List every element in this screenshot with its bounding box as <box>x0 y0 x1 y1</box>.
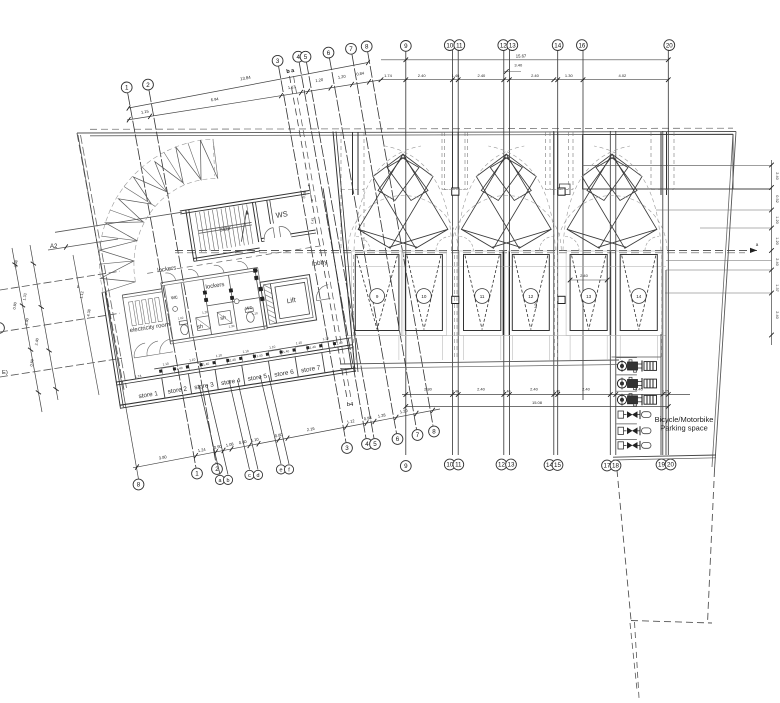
svg-text:10: 10 <box>421 294 427 299</box>
svg-text:2: 2 <box>146 82 150 89</box>
svg-text:12: 12 <box>528 294 534 299</box>
svg-text:5: 5 <box>373 441 377 448</box>
svg-text:15.08: 15.08 <box>532 400 543 405</box>
svg-text:2.40: 2.40 <box>477 387 486 392</box>
svg-text:12: 12 <box>500 42 507 49</box>
svg-text:13: 13 <box>509 42 516 49</box>
svg-text:0.52: 0.52 <box>775 195 779 202</box>
svg-text:6: 6 <box>396 436 400 443</box>
svg-text:b: b <box>227 478 230 484</box>
svg-text:2.40: 2.40 <box>418 73 427 78</box>
svg-text:15.67: 15.67 <box>516 53 527 58</box>
svg-text:Bicycle/Motorbike: Bicycle/Motorbike <box>655 415 714 424</box>
svg-text:9: 9 <box>376 294 379 299</box>
svg-text:19: 19 <box>658 462 665 469</box>
svg-text:16: 16 <box>578 42 585 49</box>
svg-text:Parking space: Parking space <box>660 424 708 433</box>
svg-text:1.46: 1.46 <box>553 389 560 393</box>
svg-text:2.40: 2.40 <box>775 172 779 179</box>
svg-text:20: 20 <box>667 462 674 469</box>
svg-text:1: 1 <box>195 471 199 478</box>
svg-text:1.74: 1.74 <box>384 73 393 78</box>
svg-text:1.20: 1.20 <box>775 237 779 244</box>
svg-text:7: 7 <box>416 432 420 439</box>
svg-text:1.46: 1.46 <box>452 389 459 393</box>
svg-text:2.40: 2.40 <box>582 387 591 392</box>
svg-text:b4: b4 <box>347 402 354 408</box>
svg-text:2.40: 2.40 <box>580 273 589 278</box>
svg-text:18: 18 <box>612 463 619 470</box>
svg-text:e: e <box>280 468 283 474</box>
svg-text:4: 4 <box>365 441 369 448</box>
svg-text:10: 10 <box>446 42 453 49</box>
svg-text:Lift: Lift <box>286 297 296 305</box>
svg-text:11: 11 <box>456 42 463 49</box>
svg-text:11: 11 <box>455 462 462 469</box>
svg-text:WS: WS <box>275 209 288 220</box>
svg-text:8: 8 <box>137 482 141 489</box>
svg-text:13: 13 <box>586 294 592 299</box>
svg-text:13: 13 <box>508 462 515 469</box>
svg-text:8: 8 <box>432 429 436 436</box>
svg-text:wc: wc <box>170 294 179 301</box>
svg-text:d: d <box>257 473 260 479</box>
svg-text:3.40: 3.40 <box>514 63 523 68</box>
svg-text:2.40: 2.40 <box>775 258 779 265</box>
svg-text:2.40: 2.40 <box>478 73 487 78</box>
svg-text:1.46: 1.46 <box>452 73 461 78</box>
svg-text:20: 20 <box>666 42 673 49</box>
svg-text:14: 14 <box>636 294 642 299</box>
svg-text:1.20: 1.20 <box>775 216 779 223</box>
svg-text:2.40: 2.40 <box>531 73 540 78</box>
svg-text:3: 3 <box>276 58 280 65</box>
svg-text:1.40: 1.40 <box>504 389 511 393</box>
svg-text:3: 3 <box>345 445 349 452</box>
svg-text:1.30: 1.30 <box>565 73 574 78</box>
svg-text:1.37: 1.37 <box>775 284 779 291</box>
svg-text:6: 6 <box>327 50 331 57</box>
svg-text:2.40: 2.40 <box>775 311 779 318</box>
svg-text:8: 8 <box>365 44 369 51</box>
svg-text:12: 12 <box>498 462 505 469</box>
svg-text:5: 5 <box>304 54 308 61</box>
svg-text:E): E) <box>2 370 8 376</box>
svg-text:2.40: 2.40 <box>530 387 539 392</box>
svg-text:4.50: 4.50 <box>534 301 538 308</box>
svg-text:11: 11 <box>480 294 485 299</box>
svg-text:9: 9 <box>404 43 408 50</box>
svg-text:7: 7 <box>349 46 353 53</box>
svg-text:4.02: 4.02 <box>619 73 628 78</box>
svg-text:1.25: 1.25 <box>662 389 669 393</box>
svg-text:A2: A2 <box>50 244 58 250</box>
svg-text:2.80: 2.80 <box>424 387 433 392</box>
svg-text:1: 1 <box>125 85 129 92</box>
svg-text:c: c <box>248 473 251 479</box>
svg-text:a: a <box>219 478 222 484</box>
svg-text:14: 14 <box>554 42 561 49</box>
svg-text:15: 15 <box>554 462 561 469</box>
svg-text:9: 9 <box>404 463 408 470</box>
